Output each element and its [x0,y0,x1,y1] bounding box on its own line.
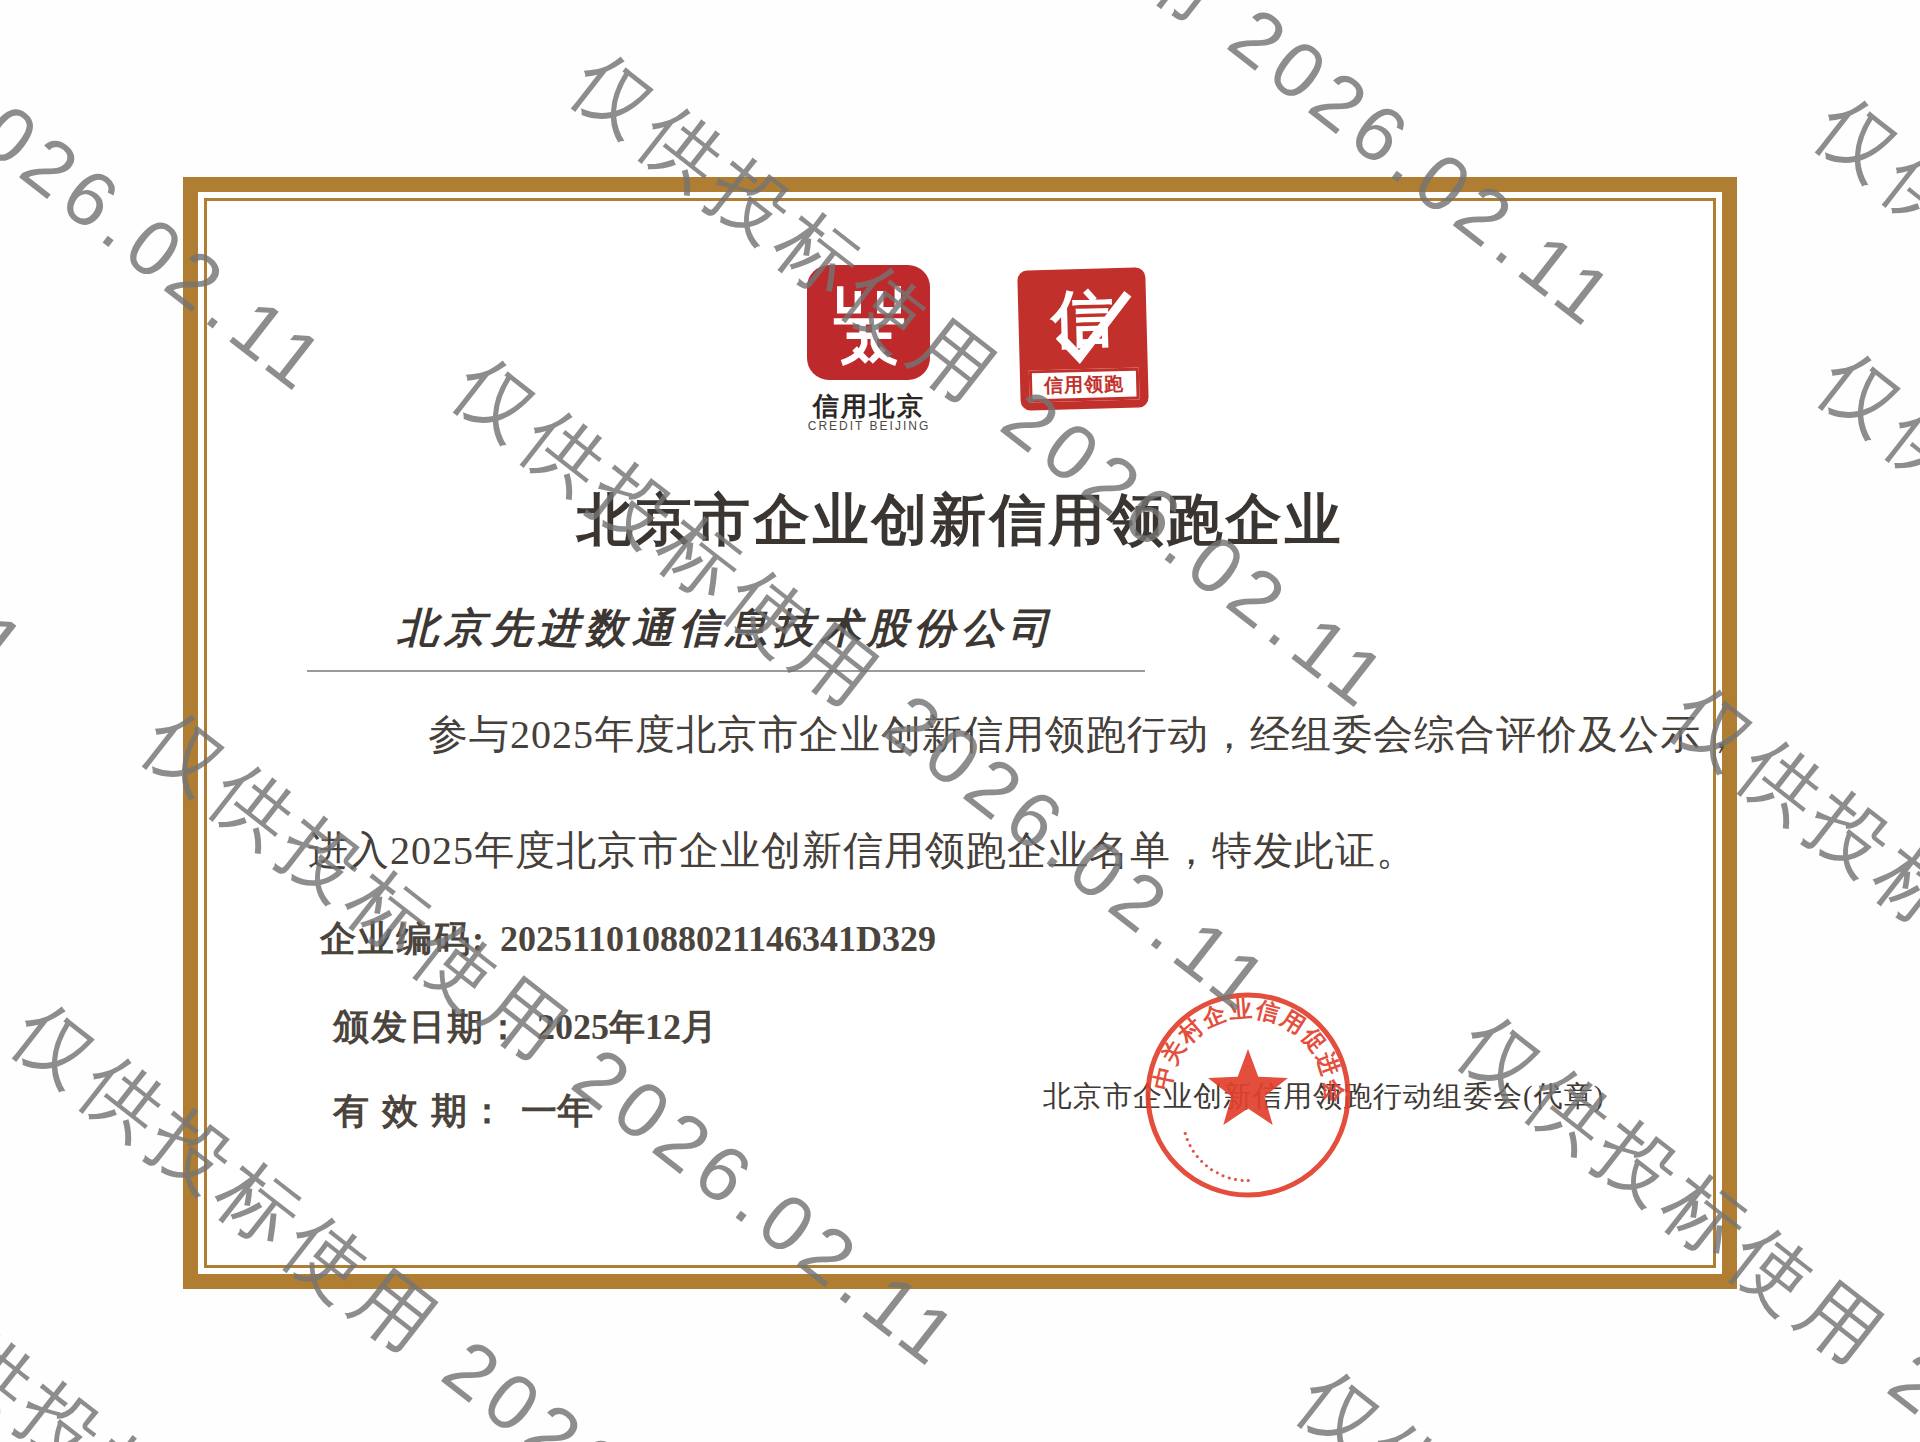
watermark-text: 仅供投标使用 2026.02.11 [0,0,51,705]
checkmark-icon [1017,267,1148,374]
company-name: 北京先进数通信息技术股份公司 [307,601,1145,672]
issue-date-value: 2025年12月 [537,1007,717,1047]
validity-label: 有 效 期： [333,1091,507,1131]
enterprise-code-label: 企业编码: [320,919,486,959]
credit-beijing-logo-icon [807,265,930,380]
red-star-icon [1208,1049,1288,1125]
credit-beijing-caption-en: CREDIT BEIJING [778,419,960,433]
field-enterprise-code: 企业编码:20251101088021146341D329 [320,915,936,964]
certificate-page: 信用北京 CREDIT BEIJING 信 信用领跑 北京市企业创新信用领跑企业… [0,0,1920,1442]
body-text-line2: 进入2025年度北京市企业创新信用领跑企业名单，特发此证。 [308,823,1417,878]
watermark-text: 仅供投标使用 2026.02.11 [1794,75,1920,780]
credit-beijing-glyph-icon [821,275,917,371]
committee-seal-icon: 中关村企业信用促进会 •••••••••••••• [1138,979,1358,1205]
credit-leader-label: 信用领跑 [1029,368,1140,403]
validity-value: 一年 [521,1091,593,1131]
field-validity: 有 效 期：一年 [333,1087,593,1136]
watermark-text: 仅供投标使用 2026.02.11 [1276,1348,1920,1442]
watermark-text: 仅供投标使用 2026.02.11 [1797,330,1920,1035]
certificate-frame: 信用北京 CREDIT BEIJING 信 信用领跑 北京市企业创新信用领跑企业… [183,177,1737,1289]
body-text-line1: 参与2025年度北京市企业创新信用领跑行动，经组委会综合评价及公示， [428,707,1742,762]
issue-date-label: 颁发日期： [333,1007,523,1047]
enterprise-code-value: 20251101088021146341D329 [500,919,936,959]
credit-leader-seal-icon: 信 信用领跑 [1017,267,1149,410]
field-issue-date: 颁发日期：2025年12月 [333,1003,717,1052]
certificate-title: 北京市企业创新信用领跑企业 [198,483,1722,559]
